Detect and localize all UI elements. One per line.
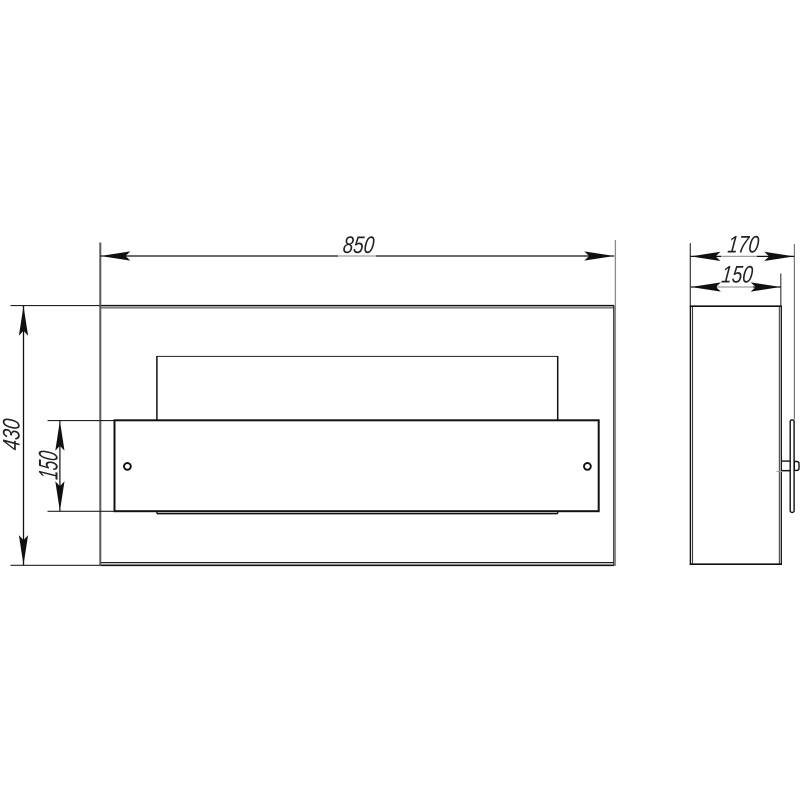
svg-text:150: 150 [720, 260, 754, 288]
svg-text:430: 430 [0, 417, 25, 451]
svg-text:170: 170 [726, 230, 760, 258]
svg-text:850: 850 [342, 231, 376, 259]
svg-text:150: 150 [34, 449, 64, 481]
